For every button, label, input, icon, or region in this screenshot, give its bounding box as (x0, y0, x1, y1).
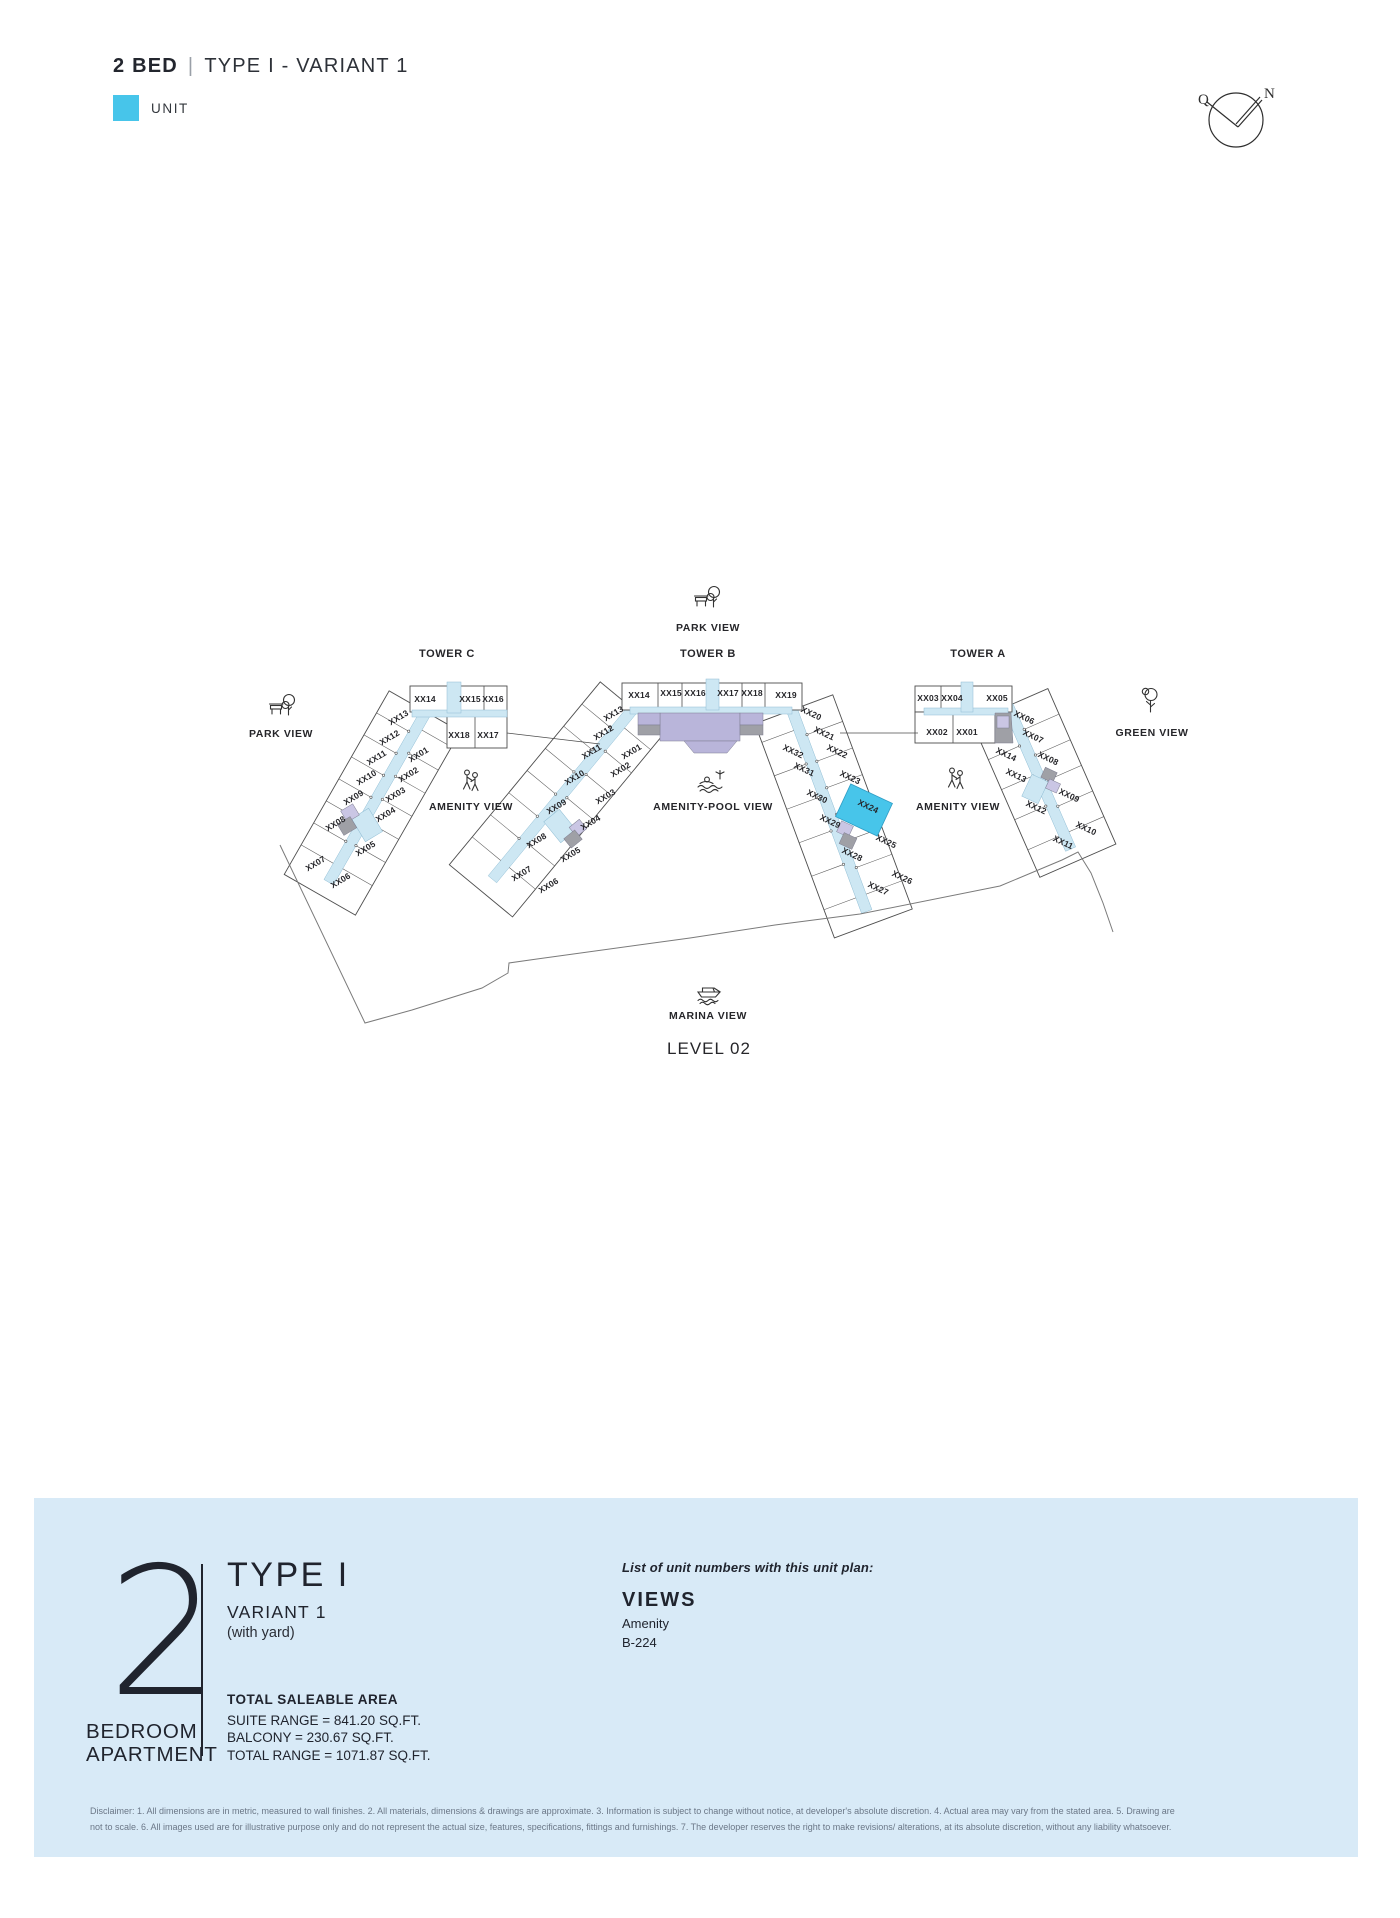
plan-block (740, 725, 763, 735)
plan-block (638, 713, 660, 725)
boat-view-icon (698, 988, 720, 1005)
plan-block (961, 682, 973, 712)
unit-label-xx17-tower-c: XX17 (477, 730, 499, 740)
caption-line-1: BEDROOM (86, 1720, 218, 1743)
pool-view-icon (698, 771, 724, 793)
unit-label-xx19-tower-b: XX19 (775, 690, 797, 700)
amenity-pool-view-label: AMENITY-POOL VIEW (653, 801, 773, 813)
unit-label-xx15-tower-b: XX15 (660, 688, 682, 698)
vertical-divider (201, 1564, 203, 1756)
unit-label-xx02-tower-a: XX02 (926, 727, 948, 737)
brochure-page: 2 BED | TYPE I - VARIANT 1 UNIT Q N XX14… (0, 0, 1400, 1918)
park-view-icon (270, 695, 295, 716)
park-view-icon (695, 587, 720, 608)
unit-label-xx18-tower-b: XX18 (741, 688, 763, 698)
plan-block (638, 725, 660, 735)
people-view-icon (464, 770, 479, 790)
amenity-view-left-label: AMENITY VIEW (429, 801, 513, 813)
views-item-unit: B-224 (622, 1635, 874, 1650)
bedroom-apartment-caption: BEDROOM APARTMENT (86, 1720, 218, 1766)
total-range: TOTAL RANGE = 1071.87 SQ.FT. (227, 1747, 430, 1764)
plan-block (740, 713, 763, 725)
plan-block (997, 716, 1009, 728)
suite-range: SUITE RANGE = 841.20 SQ.FT. (227, 1712, 430, 1729)
people-view-icon (949, 768, 964, 788)
total-saleable-area-heading: TOTAL SALEABLE AREA (227, 1692, 398, 1707)
disclaimer-line-2: not to scale. 6. All images used are for… (90, 1819, 1306, 1835)
unit-label-xx01-tower-a: XX01 (956, 727, 978, 737)
unit-label-xx14-tower-c: XX14 (414, 694, 436, 704)
amenity-view-right-label: AMENITY VIEW (916, 801, 1000, 813)
tower-label-tower-b: TOWER B (680, 648, 736, 660)
level-label: LEVEL 02 (667, 1039, 751, 1058)
unit-label-xx16-tower-c: XX16 (482, 694, 504, 704)
unit-list-column: List of unit numbers with this unit plan… (622, 1560, 874, 1650)
unit-label-xx05-tower-a: XX05 (986, 693, 1008, 703)
unit-label-xx15-tower-c: XX15 (459, 694, 481, 704)
unit-label-xx18-tower-c: XX18 (448, 730, 470, 740)
unit-list-intro: List of unit numbers with this unit plan… (622, 1560, 874, 1575)
unit-label-xx14-tower-b: XX14 (628, 690, 650, 700)
green-view-label: GREEN VIEW (1115, 727, 1188, 739)
site-plan: XX14XX15XX16XX18XX17XX13XX12XX11XX10XX09… (0, 0, 1400, 1200)
disclaimer-line-1: Disclaimer: 1. All dimensions are in met… (90, 1803, 1306, 1819)
tower-label-tower-c: TOWER C (419, 648, 475, 660)
variant-label: VARIANT 1 (227, 1602, 327, 1623)
plan-block (684, 741, 737, 753)
tree-view-icon (1142, 688, 1157, 712)
park-view-top-label: PARK VIEW (676, 622, 740, 634)
unit-label-xx16-tower-b: XX16 (684, 688, 706, 698)
plan-block (660, 713, 740, 741)
site-boundary (280, 845, 1113, 1023)
park-view-left-label: PARK VIEW (249, 728, 313, 740)
area-figures: SUITE RANGE = 841.20 SQ.FT. BALCONY = 23… (227, 1712, 430, 1764)
tower-label-tower-a: TOWER A (950, 648, 1006, 660)
views-item-amenity: Amenity (622, 1616, 874, 1631)
info-panel: 2 BEDROOM APARTMENT TYPE I VARIANT 1 (wi… (34, 1498, 1358, 1857)
unit-label-xx03-tower-a: XX03 (917, 693, 939, 703)
yard-note: (with yard) (227, 1625, 295, 1641)
unit-label-xx17-tower-b: XX17 (717, 688, 739, 698)
balcony-area: BALCONY = 230.67 SQ.FT. (227, 1729, 430, 1746)
type-title: TYPE I (227, 1556, 350, 1595)
unit-label-xx04-tower-a: XX04 (941, 693, 963, 703)
caption-line-2: APARTMENT (86, 1743, 218, 1766)
marina-view-label: MARINA VIEW (669, 1010, 747, 1022)
bedroom-count-numeral: 2 (84, 1544, 244, 1722)
views-heading: VIEWS (622, 1589, 874, 1612)
disclaimer: Disclaimer: 1. All dimensions are in met… (90, 1803, 1306, 1835)
